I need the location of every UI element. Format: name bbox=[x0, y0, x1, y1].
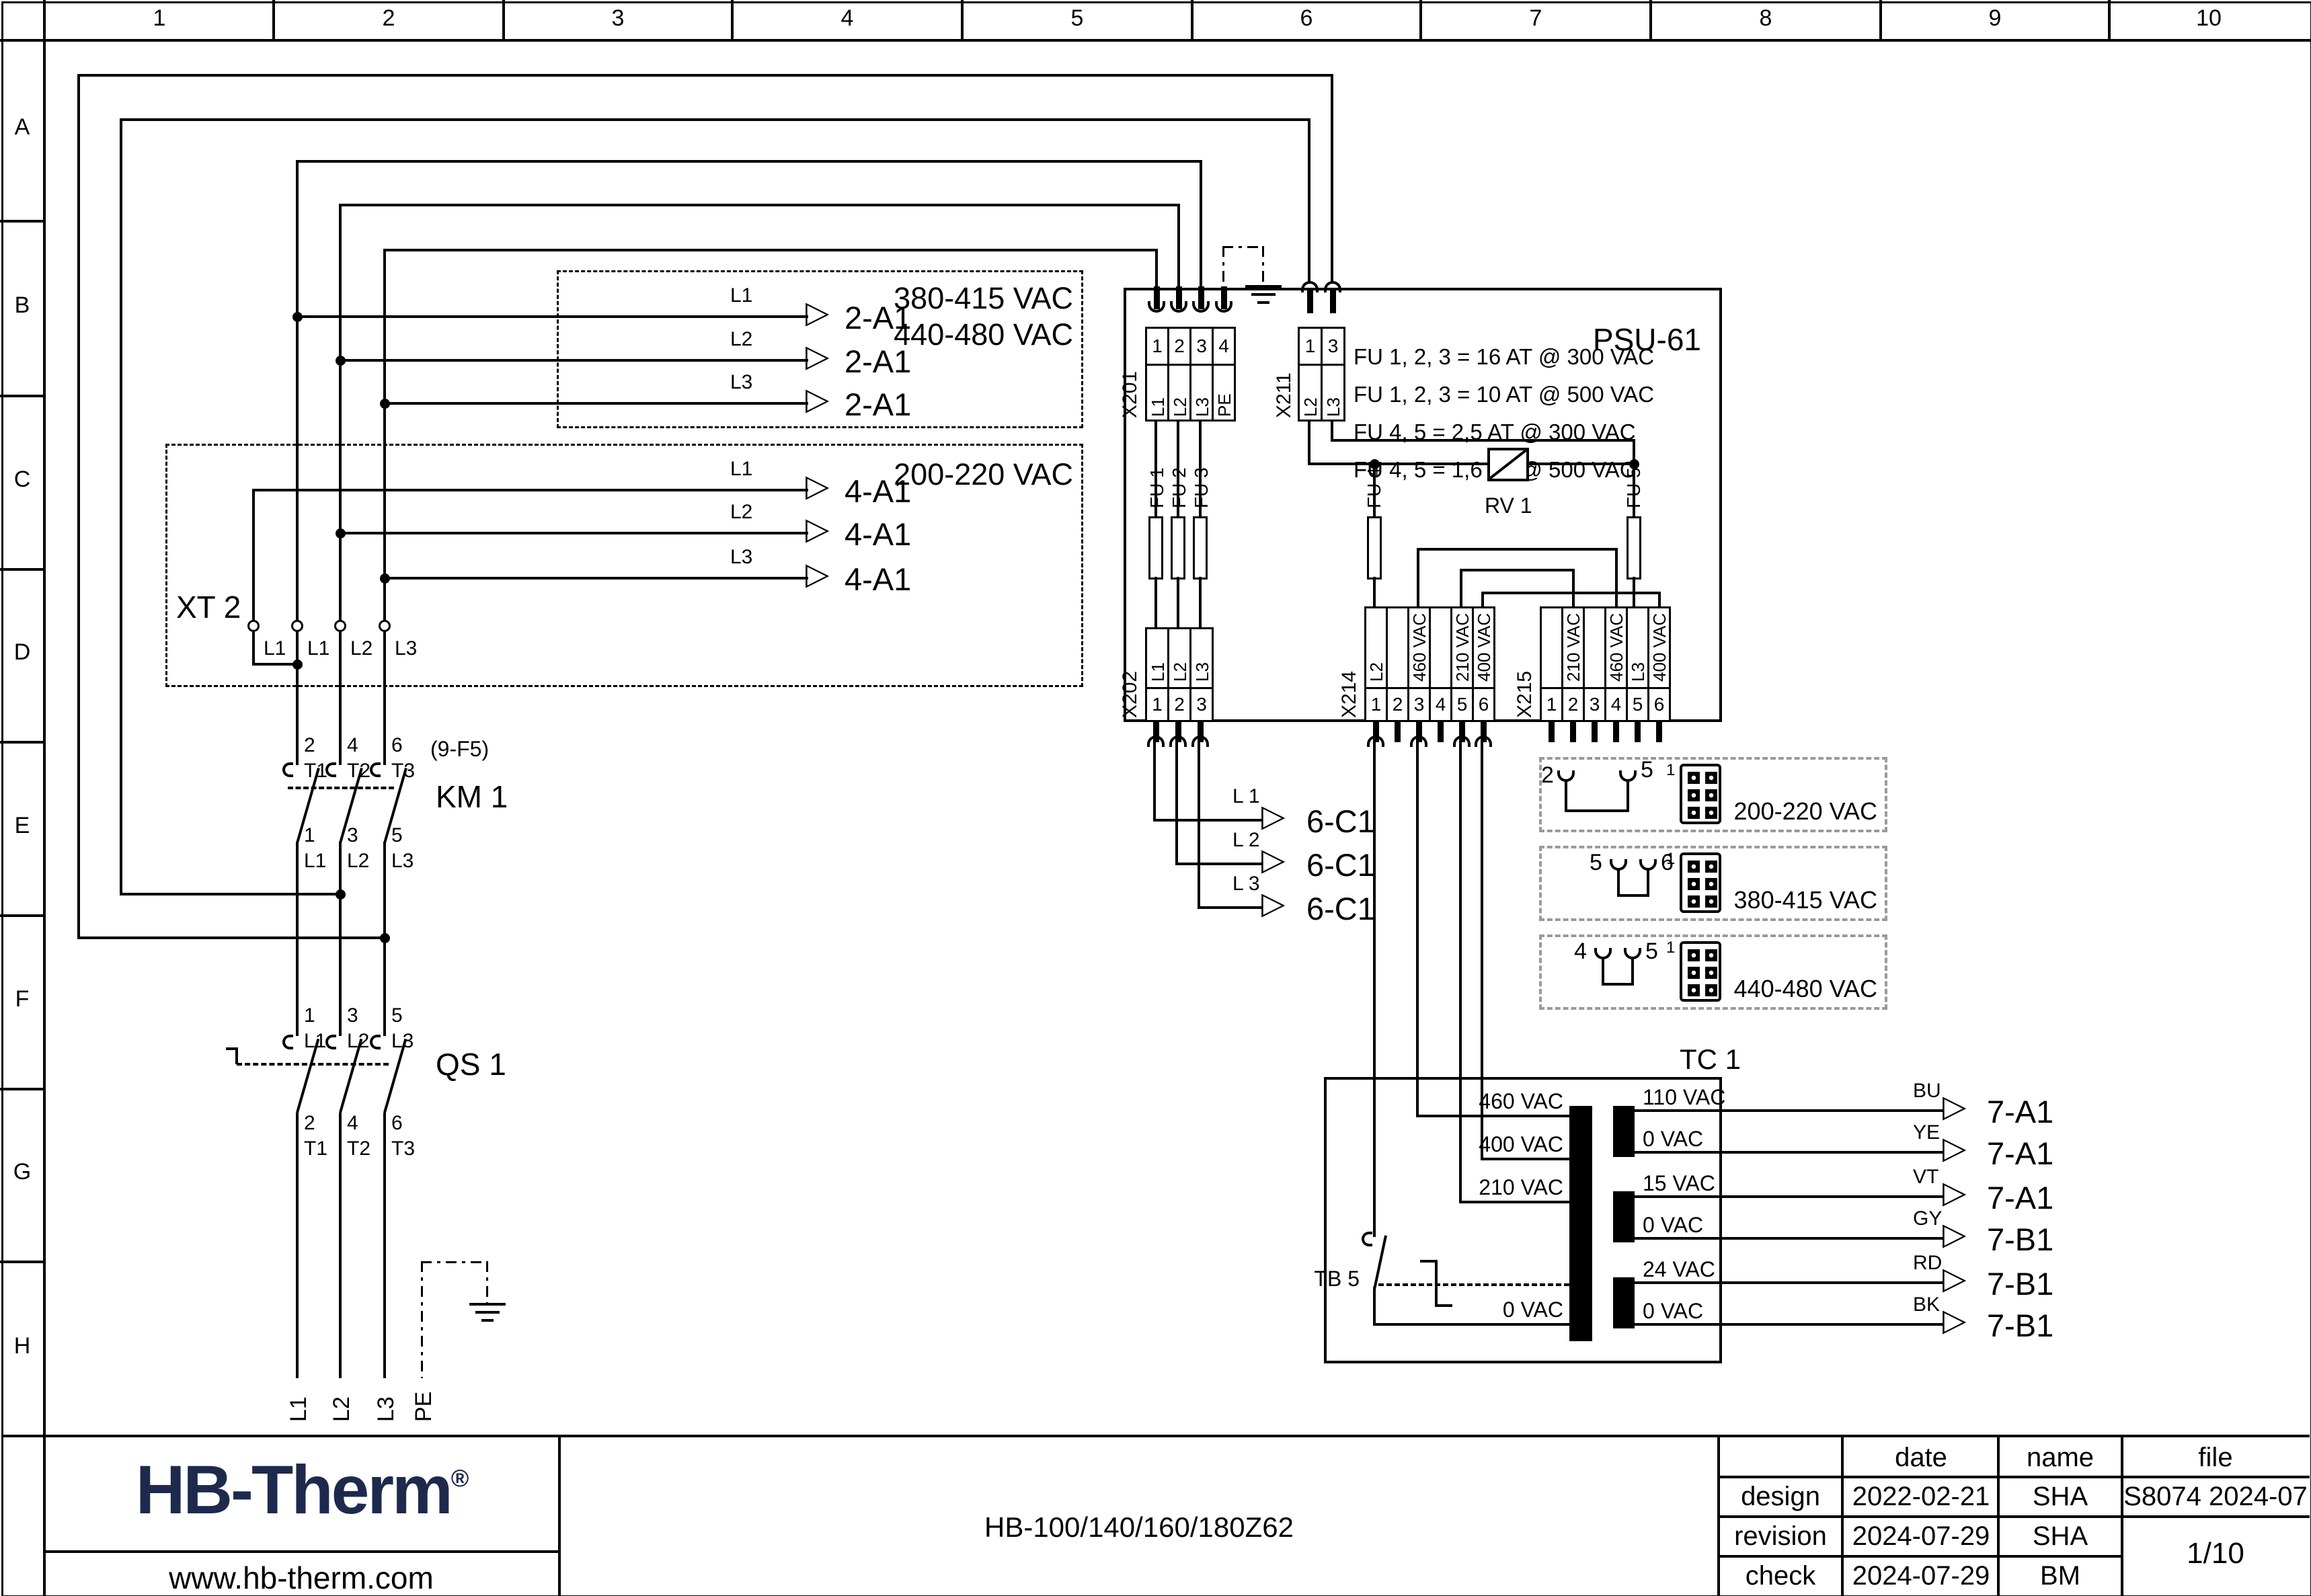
terminal-cell bbox=[1386, 606, 1409, 689]
linkage-dashed bbox=[237, 1063, 389, 1066]
wire bbox=[339, 842, 342, 1036]
design-date: 2022-02-21 bbox=[1852, 1482, 1990, 1512]
wire bbox=[1460, 569, 1462, 608]
wire bbox=[1526, 463, 1635, 465]
feed1-target: 2-A1 bbox=[845, 386, 911, 423]
col-ref: 9 bbox=[1989, 5, 2002, 32]
connector-pin1: 1 bbox=[1666, 939, 1675, 957]
connector-contact bbox=[1688, 789, 1700, 801]
fuse-label: FU 2 bbox=[1169, 467, 1190, 508]
feed1-target: 2-A1 bbox=[845, 343, 911, 380]
rv1-label: RV 1 bbox=[1485, 493, 1532, 518]
fuse-label: FU 1 bbox=[1146, 467, 1168, 508]
col-ref: 2 bbox=[383, 5, 395, 32]
registered-mark: ® bbox=[451, 1464, 467, 1492]
feed1-target: 2-A1 bbox=[845, 299, 911, 336]
arrow-icon: ▷ bbox=[1943, 1263, 1966, 1293]
terminal-cell: 3 bbox=[1321, 327, 1345, 366]
schematic-sheet: 1 2 3 4 5 6 7 8 9 10 A B C D E F G H 380… bbox=[0, 0, 2311, 1596]
wire bbox=[120, 118, 1310, 121]
wire bbox=[383, 402, 808, 405]
design-name: SHA bbox=[2033, 1482, 2088, 1512]
grid-tick bbox=[0, 1261, 43, 1263]
contact-icon bbox=[325, 1035, 336, 1049]
titleblock-line bbox=[558, 1435, 561, 1596]
wire bbox=[339, 532, 808, 534]
wire bbox=[1153, 742, 1156, 822]
connector-icon bbox=[1680, 852, 1721, 913]
terminal-cell: 6 bbox=[1472, 687, 1495, 722]
col-header-name: name bbox=[2027, 1443, 2094, 1473]
page-number: 1/10 bbox=[2187, 1537, 2244, 1570]
titleblock-line bbox=[44, 1550, 561, 1553]
wire bbox=[296, 632, 299, 765]
grid-tick bbox=[502, 0, 505, 39]
terminal-label: 400 VAC bbox=[1649, 613, 1670, 682]
contact-icon bbox=[370, 1035, 381, 1049]
xt2-term-label: L1 bbox=[307, 637, 329, 660]
connector-pin1: 1 bbox=[1666, 761, 1675, 780]
fuse-icon bbox=[1148, 516, 1163, 580]
wire bbox=[252, 632, 255, 666]
arrow-icon: ▷ bbox=[806, 513, 829, 544]
col-ref: 3 bbox=[612, 5, 625, 32]
qs1-pin: 1 bbox=[304, 1004, 315, 1027]
fuse-label: FU 5 bbox=[1623, 467, 1645, 508]
mains-label: PE bbox=[411, 1392, 437, 1422]
connector-contact bbox=[1688, 967, 1700, 979]
xt2-terminal bbox=[334, 620, 346, 632]
wire bbox=[1373, 577, 1376, 608]
wire bbox=[1627, 780, 1629, 812]
terminal-num: 1 bbox=[1305, 335, 1316, 357]
grid-tick bbox=[731, 0, 734, 39]
psu-note: FU 1, 2, 3 = 16 AT @ 300 VAC bbox=[1354, 344, 1654, 370]
option-pin: 2 bbox=[1541, 762, 1554, 789]
wire-color-label: BU bbox=[1913, 1080, 1941, 1103]
file-id: S8074 2024-07 bbox=[2123, 1482, 2308, 1512]
phase-label: L 2 bbox=[1232, 829, 1260, 852]
handle-icon bbox=[226, 1047, 238, 1050]
terminal-name: X201 bbox=[1119, 371, 1142, 418]
terminal-num: 4 bbox=[1436, 694, 1446, 715]
qs1-pin: 2 bbox=[304, 1112, 315, 1135]
terminal-num: 4 bbox=[1611, 694, 1622, 715]
wire bbox=[1459, 1201, 1572, 1203]
wire bbox=[252, 489, 255, 621]
terminal-num: 6 bbox=[1654, 694, 1665, 715]
tc1-tap-label: 15 VAC bbox=[1643, 1171, 1715, 1196]
plug-pin-icon bbox=[1570, 722, 1576, 742]
feed2-target: 4-A1 bbox=[845, 516, 911, 553]
col-ref: 5 bbox=[1071, 5, 1084, 32]
terminal-cell: 4 bbox=[1212, 327, 1236, 366]
terminal-label: L2 bbox=[1170, 397, 1191, 417]
feed2-target: 4-A1 bbox=[845, 473, 911, 510]
xt2-term-label: L3 bbox=[395, 637, 417, 660]
col-ref: 4 bbox=[841, 5, 854, 32]
pe-wire bbox=[421, 1261, 488, 1263]
plug-pin-icon bbox=[1613, 722, 1619, 742]
company-website: www.hb-therm.com bbox=[169, 1560, 434, 1596]
km1-pin: L1 bbox=[304, 850, 326, 873]
wire bbox=[1331, 74, 1333, 282]
drawing-title: HB-100/140/160/180Z62 bbox=[984, 1511, 1294, 1544]
row-ref: D bbox=[14, 639, 31, 666]
wire bbox=[1617, 894, 1649, 897]
terminal-num: 3 bbox=[1196, 694, 1207, 715]
grid-tick bbox=[0, 220, 43, 223]
col-header-date: date bbox=[1895, 1443, 1947, 1473]
connector-contact bbox=[1705, 789, 1717, 801]
connector-icon bbox=[1680, 764, 1721, 824]
connector-contact bbox=[1705, 807, 1717, 819]
out6-target: 6-C1 bbox=[1306, 846, 1375, 883]
fuse-icon bbox=[1171, 516, 1185, 580]
connector-contact bbox=[1705, 967, 1717, 979]
pe-wire bbox=[1222, 246, 1224, 288]
terminal-cell: 3 bbox=[1189, 327, 1214, 366]
grid-tick bbox=[1649, 0, 1652, 39]
fuse-icon bbox=[1367, 516, 1382, 580]
terminal-num: 2 bbox=[1393, 694, 1403, 715]
terminal-label: PE bbox=[1214, 393, 1235, 417]
connector-contact bbox=[1705, 895, 1717, 908]
tc1-tap-label: 0 VAC bbox=[1643, 1127, 1703, 1152]
arrow-icon: ▷ bbox=[806, 470, 829, 501]
km1-pin: 3 bbox=[347, 824, 358, 847]
wire bbox=[1572, 569, 1575, 608]
terminal-num: 5 bbox=[1457, 694, 1468, 715]
wire bbox=[1154, 577, 1157, 629]
km1-pin: L3 bbox=[391, 850, 414, 873]
wire bbox=[1617, 869, 1620, 897]
connector-contact bbox=[1688, 878, 1700, 890]
terminal-cell: 1 bbox=[1364, 687, 1388, 722]
terminal-num: 1 bbox=[1546, 694, 1557, 715]
terminal-cell: 3 bbox=[1407, 687, 1431, 722]
wire bbox=[339, 1113, 342, 1378]
ground-icon bbox=[1245, 285, 1282, 288]
linkage-dashed bbox=[288, 787, 394, 789]
wire bbox=[339, 632, 342, 765]
company-logo: HB-Therm® bbox=[136, 1451, 467, 1529]
fuse-icon bbox=[1193, 516, 1208, 580]
terminal-num: 1 bbox=[1152, 335, 1163, 357]
contact-icon bbox=[282, 1035, 293, 1049]
fuse-label: FU 4 bbox=[1364, 467, 1385, 508]
option-range: 200-220 VAC bbox=[1734, 797, 1877, 826]
tc1-output-target: 7-B1 bbox=[1987, 1221, 2053, 1258]
plug-pin-icon bbox=[1330, 289, 1336, 313]
terminal-num: 3 bbox=[1196, 335, 1207, 357]
plug-pin-icon bbox=[1635, 722, 1641, 742]
wire bbox=[339, 359, 808, 362]
connector-contact bbox=[1705, 984, 1717, 996]
qs1-label: QS 1 bbox=[436, 1046, 506, 1082]
wire bbox=[1200, 160, 1202, 288]
terminal-cell: 1 bbox=[1145, 327, 1169, 366]
wire bbox=[383, 842, 386, 1036]
connector-icon bbox=[1680, 941, 1721, 1002]
ground-icon bbox=[1251, 293, 1276, 296]
km1-pin: L2 bbox=[347, 850, 369, 873]
tc1-label: TC 1 bbox=[1680, 1043, 1741, 1076]
option-pin: 5 bbox=[1590, 850, 1602, 876]
plug-pin-icon bbox=[1592, 722, 1598, 742]
terminal-cell: 5 bbox=[1626, 687, 1649, 722]
terminal-label: L2 bbox=[1366, 662, 1387, 682]
terminal-cell: 1 bbox=[1145, 687, 1169, 722]
km1-pin: 5 bbox=[391, 824, 403, 847]
col-ref: 8 bbox=[1760, 5, 1772, 32]
plug-pin-icon bbox=[1656, 722, 1662, 742]
terminal-cell: 1 bbox=[1298, 327, 1323, 366]
row-ref: F bbox=[15, 986, 30, 1012]
qs1-pin: 4 bbox=[347, 1112, 358, 1135]
wire bbox=[1460, 569, 1575, 571]
terminal-label: L1 bbox=[1148, 397, 1169, 417]
grid-tick bbox=[0, 914, 43, 917]
qs1-pin: 5 bbox=[391, 1004, 403, 1027]
contact-icon bbox=[282, 762, 293, 777]
terminal-cell: 6 bbox=[1647, 687, 1671, 722]
grid-tick bbox=[0, 1088, 43, 1090]
terminal-label: 400 VAC bbox=[1474, 613, 1495, 682]
terminal-cell bbox=[1540, 606, 1563, 689]
check-name: BM bbox=[2040, 1561, 2080, 1591]
terminal-name: X214 bbox=[1338, 671, 1361, 718]
arrow-icon: ▷ bbox=[1261, 800, 1285, 831]
grid-tick bbox=[961, 0, 964, 39]
terminal-label: 210 VAC bbox=[1452, 613, 1473, 682]
mains-label: L1 bbox=[286, 1396, 312, 1422]
arrow-icon: ▷ bbox=[1261, 844, 1285, 875]
grid-tick bbox=[0, 568, 43, 571]
junction-dot bbox=[380, 399, 390, 409]
plug-pin-icon bbox=[1307, 289, 1313, 313]
arrow-icon: ▷ bbox=[806, 340, 829, 371]
out6-target: 6-C1 bbox=[1306, 803, 1375, 840]
tc1-output-target: 7-A1 bbox=[1987, 1179, 2053, 1216]
trip-flag-icon bbox=[1436, 1304, 1452, 1307]
qs1-pin: T3 bbox=[391, 1138, 415, 1160]
wire bbox=[120, 118, 122, 895]
wire bbox=[1198, 906, 1263, 909]
connector-contact bbox=[1705, 861, 1717, 873]
terminal-name: X202 bbox=[1119, 671, 1142, 718]
connector-contact bbox=[1705, 878, 1717, 890]
titleblock-line bbox=[1717, 1555, 2123, 1558]
option-pin: 4 bbox=[1574, 939, 1587, 965]
feed1-range-b: 440-480 VAC bbox=[894, 317, 1073, 352]
terminal-num: 3 bbox=[1328, 335, 1339, 357]
titleblock-line bbox=[1717, 1515, 2310, 1518]
col-ref: 10 bbox=[2196, 5, 2222, 32]
pe-wire bbox=[1262, 246, 1264, 286]
wire bbox=[1308, 463, 1489, 465]
wire bbox=[1308, 420, 1310, 465]
logo-text: HB-Therm bbox=[136, 1451, 451, 1528]
wire bbox=[1198, 742, 1200, 909]
linkage-dashed bbox=[1378, 1283, 1569, 1286]
grid-tick bbox=[0, 395, 43, 397]
terminal-num: 1 bbox=[1371, 694, 1382, 715]
feed2-range: 200-220 VAC bbox=[894, 457, 1073, 492]
terminal-cell bbox=[1583, 606, 1606, 689]
xt2-label: XT 2 bbox=[176, 589, 241, 625]
option-pin: 5 bbox=[1641, 757, 1653, 783]
junction-dot bbox=[336, 356, 346, 366]
contact-icon bbox=[1362, 1232, 1372, 1246]
tc1-secondary-winding bbox=[1613, 1106, 1635, 1157]
grid-tick bbox=[1879, 0, 1882, 39]
wire bbox=[120, 893, 343, 895]
wire bbox=[1417, 548, 1419, 608]
terminal-num: 3 bbox=[1590, 694, 1600, 715]
terminal-label: L2 bbox=[1300, 397, 1321, 417]
arrow-icon: ▷ bbox=[806, 558, 829, 589]
out6-target: 6-C1 bbox=[1306, 890, 1375, 927]
terminal-label: L3 bbox=[1628, 662, 1649, 682]
junction-dot bbox=[380, 573, 390, 584]
fuse-label: FU 3 bbox=[1191, 467, 1212, 508]
pe-wire bbox=[421, 1261, 423, 1378]
option-range: 380-415 VAC bbox=[1734, 886, 1877, 914]
terminal-num: 2 bbox=[1174, 335, 1185, 357]
phase-label: L3 bbox=[730, 546, 752, 569]
phase-label: L 1 bbox=[1232, 785, 1260, 808]
tc1-output-target: 7-B1 bbox=[1987, 1307, 2053, 1344]
arrow-icon: ▷ bbox=[1943, 1176, 1966, 1207]
tc1-output-target: 7-B1 bbox=[1987, 1265, 2053, 1302]
plug-pin-icon bbox=[1549, 722, 1555, 742]
terminal-name: X215 bbox=[1514, 671, 1536, 718]
junction-dot bbox=[336, 528, 346, 538]
terminal-num: 2 bbox=[1174, 694, 1185, 715]
wire bbox=[296, 842, 299, 1036]
wire bbox=[383, 1113, 386, 1378]
grid-line bbox=[0, 39, 2311, 42]
terminal-label: 460 VAC bbox=[1409, 613, 1430, 682]
terminal-num: 2 bbox=[1568, 694, 1579, 715]
connector-contact bbox=[1705, 772, 1717, 784]
tc1-tap-label: 0 VAC bbox=[1503, 1298, 1563, 1322]
ground-icon bbox=[475, 1311, 500, 1314]
trip-flag-icon bbox=[1420, 1260, 1436, 1263]
feed1-range-a: 380-415 VAC bbox=[894, 281, 1073, 316]
ground-icon bbox=[469, 1303, 506, 1306]
qs1-pin: T1 bbox=[304, 1138, 327, 1160]
plug-pin-icon bbox=[1438, 722, 1444, 742]
wire bbox=[1481, 1158, 1572, 1160]
connector-contact bbox=[1688, 984, 1700, 996]
tc1-tap-label: 24 VAC bbox=[1643, 1257, 1715, 1282]
terminal-cell: 4 bbox=[1604, 687, 1628, 722]
junction-dot bbox=[292, 312, 303, 322]
connector-contact bbox=[1688, 949, 1700, 961]
xt2-terminal bbox=[291, 620, 303, 632]
wire bbox=[1416, 742, 1419, 1117]
connector-contact bbox=[1688, 861, 1700, 873]
tc1-tap-label: 460 VAC bbox=[1479, 1089, 1563, 1114]
wire-color-label: VT bbox=[1913, 1166, 1938, 1189]
pe-wire bbox=[486, 1261, 488, 1304]
phase-label: L2 bbox=[730, 501, 752, 524]
terminal-num: 3 bbox=[1414, 694, 1425, 715]
wire bbox=[383, 632, 386, 765]
page-border bbox=[1, 1, 2311, 1596]
arrow-icon: ▷ bbox=[1261, 887, 1285, 918]
wire bbox=[252, 489, 808, 491]
wire bbox=[1175, 742, 1178, 865]
wire bbox=[296, 315, 808, 318]
wire-color-label: YE bbox=[1913, 1121, 1940, 1144]
wire bbox=[1155, 249, 1158, 288]
wire bbox=[77, 74, 1333, 77]
wire bbox=[1565, 780, 1567, 812]
qs1-pin: T2 bbox=[347, 1138, 370, 1160]
terminal-label: L2 bbox=[1170, 662, 1191, 682]
col-ref: 6 bbox=[1300, 5, 1313, 32]
terminal-label: 460 VAC bbox=[1606, 613, 1627, 682]
tb5-label: TB 5 bbox=[1314, 1267, 1360, 1291]
wire bbox=[1175, 863, 1263, 865]
row-ref: A bbox=[15, 114, 30, 141]
fuse-icon bbox=[1627, 516, 1641, 580]
qs1-pin: 3 bbox=[347, 1004, 358, 1027]
row-ref: C bbox=[14, 467, 31, 493]
wire bbox=[1565, 809, 1629, 812]
wire bbox=[383, 249, 1158, 251]
row-label: revision bbox=[1734, 1521, 1827, 1552]
terminal-cell: 3 bbox=[1583, 687, 1606, 722]
phase-label: L 3 bbox=[1232, 873, 1260, 895]
titleblock-line bbox=[1717, 1476, 2310, 1478]
qs1-pin: 6 bbox=[391, 1112, 403, 1135]
col-header-file: file bbox=[2198, 1443, 2232, 1473]
mains-label: L3 bbox=[373, 1396, 399, 1422]
wire bbox=[77, 74, 80, 939]
wire-color-label: BK bbox=[1913, 1293, 1940, 1316]
terminal-name: X211 bbox=[1273, 372, 1296, 418]
wire bbox=[1308, 118, 1310, 282]
titleblock-line bbox=[1, 1435, 2310, 1437]
wire bbox=[339, 204, 1180, 206]
wire bbox=[1615, 548, 1618, 608]
wire bbox=[1177, 577, 1179, 629]
terminal-num: 6 bbox=[1479, 694, 1489, 715]
terminal-num: 4 bbox=[1218, 335, 1229, 357]
grid-line bbox=[43, 0, 46, 1596]
phase-label: L1 bbox=[730, 458, 752, 481]
contact-icon bbox=[325, 762, 336, 777]
col-ref: 1 bbox=[153, 5, 166, 32]
wire bbox=[1602, 957, 1604, 986]
wire bbox=[1373, 1287, 1376, 1326]
connector-contact bbox=[1705, 949, 1717, 961]
terminal-cell: 2 bbox=[1561, 687, 1585, 722]
arrow-icon: ▷ bbox=[1943, 1304, 1966, 1335]
arrow-icon: ▷ bbox=[1943, 1218, 1966, 1249]
xt2-terminal bbox=[247, 620, 260, 632]
grid-tick bbox=[2108, 0, 2111, 39]
terminal-cell: 5 bbox=[1450, 687, 1474, 722]
pe-wire bbox=[1222, 246, 1264, 248]
option-range: 440-480 VAC bbox=[1734, 975, 1877, 1003]
km1-ref: (9-F5) bbox=[430, 737, 489, 762]
psu-note: FU 1, 2, 3 = 10 AT @ 500 VAC bbox=[1354, 382, 1654, 407]
